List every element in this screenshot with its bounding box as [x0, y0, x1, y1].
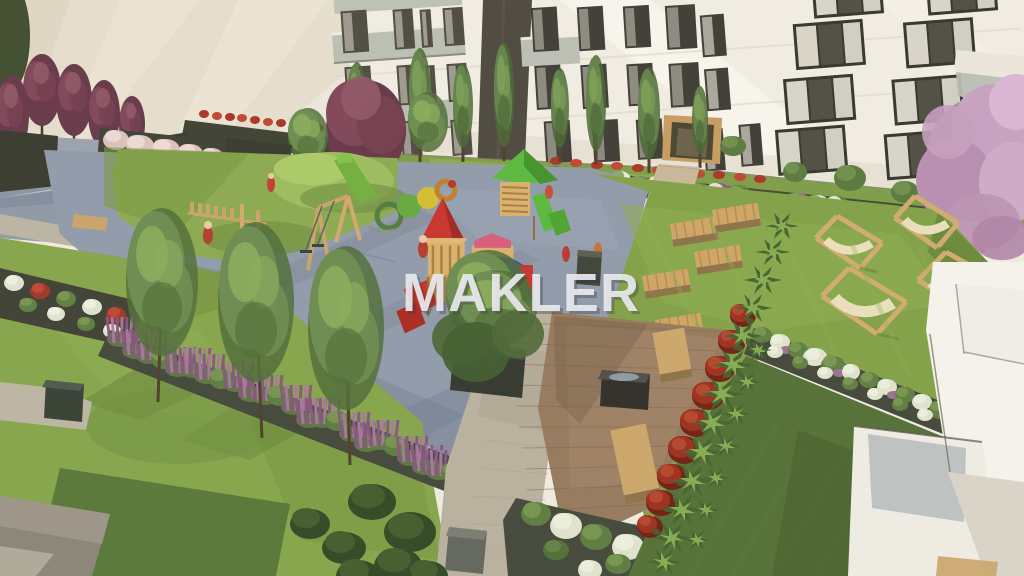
svg-text:MAKLER: MAKLER — [402, 263, 640, 323]
